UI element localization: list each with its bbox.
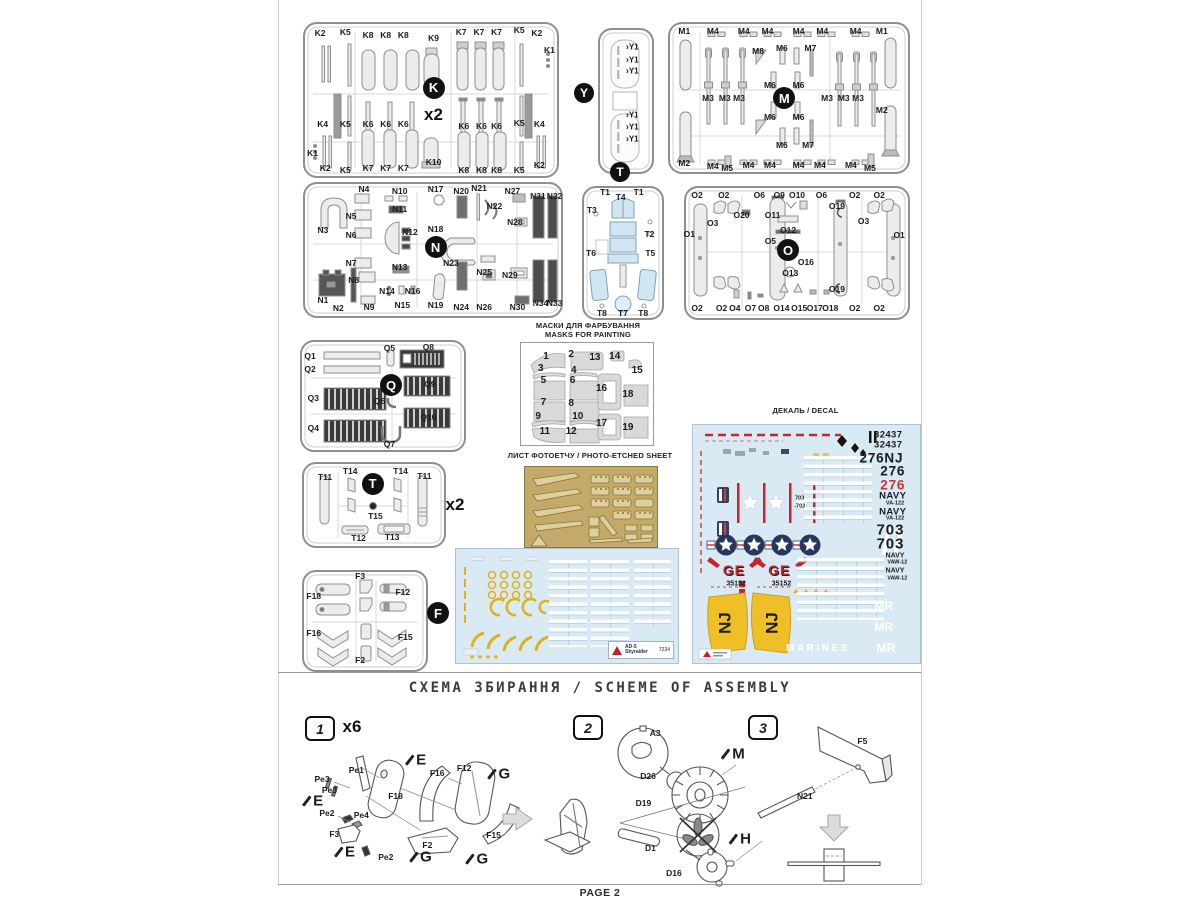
part-label-m: M3: [852, 94, 864, 103]
part-label-n: N6: [346, 231, 357, 240]
part-label-o: O9: [774, 190, 785, 199]
part-label-k: K2: [315, 29, 326, 38]
part-label-o: O13: [782, 268, 798, 277]
part-label-n: N31: [530, 192, 546, 201]
part-label-m: M4: [738, 27, 750, 36]
part-label-o: O5: [765, 237, 776, 246]
part-label-o: O16: [798, 258, 814, 267]
sprue-q-panel: Q Q1Q2Q3Q4Q5Q6Q7Q8Q9Q10: [300, 340, 466, 452]
part-label-k: K6: [398, 120, 409, 129]
part-label-n: N24: [453, 303, 469, 312]
part-label-y: Y1: [626, 43, 639, 52]
part-label-n: N33: [547, 299, 563, 308]
assembly-label: D19: [636, 798, 652, 807]
assembly-label: F12: [457, 764, 472, 773]
brand-logo-icon: [612, 646, 622, 655]
part-label-o: O2: [849, 190, 860, 199]
decal-marking: MR: [877, 642, 896, 654]
part-label-n: N12: [402, 227, 418, 236]
part-label-n: N1: [317, 296, 328, 305]
part-label-q: Q3: [308, 394, 319, 403]
page-number: PAGE 2: [278, 887, 922, 899]
part-label-k: K5: [514, 166, 525, 175]
sprue-n-badge: N: [425, 236, 447, 258]
decal-marking: MR: [874, 600, 893, 612]
sprue-k-multiplier: x2: [424, 105, 443, 125]
mask-number: 16: [596, 384, 607, 394]
assembly-label: G: [492, 767, 511, 782]
part-label-k: K9: [428, 33, 439, 42]
assembly-label: A3: [650, 728, 661, 737]
part-label-o: O4: [729, 303, 740, 312]
part-label-f: F12: [395, 587, 410, 596]
part-label-n: N25: [476, 268, 492, 277]
part-label-k: K5: [340, 166, 351, 175]
part-label-n: N19: [428, 301, 444, 310]
part-label-m: M6: [793, 113, 805, 122]
stencil-texture: [634, 560, 672, 626]
decal-marking: MR: [874, 621, 893, 633]
assembly-label: E: [338, 845, 355, 860]
part-label-o: O3: [858, 216, 869, 225]
part-label-n: N21: [471, 184, 487, 193]
assembly-label: G: [413, 850, 432, 865]
part-label-k: K6: [476, 122, 487, 131]
part-label-k: K8: [380, 30, 391, 39]
sprue-t-clear-badge: T: [610, 162, 630, 182]
part-label-k: K6: [380, 120, 391, 129]
mask-number: 10: [572, 412, 583, 422]
part-label-k: K8: [458, 166, 469, 175]
sprue-k-badge: K: [423, 77, 445, 99]
assembly-label: Pe4: [354, 811, 369, 820]
part-label-o: O1: [684, 229, 695, 238]
decal-marking: 35152: [772, 581, 791, 588]
mask-number: 14: [609, 352, 620, 362]
part-label-m: M3: [838, 94, 850, 103]
decal-marking: 276: [880, 478, 905, 492]
part-label-o: O12: [780, 225, 796, 234]
part-label-k: K1: [544, 46, 555, 55]
part-label-t: T3: [587, 206, 597, 215]
pe-title: ЛИСТ ФОТОЕТЧУ / PHOTO-ETCHED SHEET: [505, 451, 675, 460]
part-label-n: N17: [428, 185, 444, 194]
part-label-k: K8: [363, 30, 374, 39]
part-label-q: Q6: [374, 397, 385, 406]
decal-marking: 35152: [726, 581, 745, 588]
part-label-n: N11: [392, 205, 407, 214]
mask-number: 5: [541, 376, 547, 386]
part-label-m: M3: [733, 94, 745, 103]
decal-title: ДЕКАЛЬ / DECAL: [692, 406, 919, 415]
part-label-n: N4: [358, 185, 369, 194]
part-label-q: Q8: [423, 343, 434, 352]
decal-stencil-texture: [804, 456, 872, 523]
part-label-t2: T13: [385, 533, 400, 542]
part-label-n: N29: [502, 271, 518, 280]
part-label-n: N8: [348, 276, 359, 285]
sprue-t-clear-panel: T1T4T1T3T2T6T5T8T7T8: [582, 186, 664, 320]
part-label-n: N3: [317, 226, 328, 235]
assembly-label: F15: [486, 831, 501, 840]
part-label-t2: T15: [368, 511, 383, 520]
decal-marking: MARINES: [786, 644, 850, 654]
part-label-m: M4: [764, 160, 776, 169]
part-label-m: M4: [850, 27, 862, 36]
part-label-o: O6: [816, 190, 827, 199]
part-label-m: M1: [876, 27, 888, 36]
decal-marking: NJ: [764, 612, 781, 634]
assembly-label: D1: [645, 844, 656, 853]
assembly-label: Pe2: [378, 853, 393, 862]
part-label-o: O1: [893, 231, 904, 240]
part-label-m: M4: [707, 27, 719, 36]
part-label-k: K5: [340, 27, 351, 36]
part-label-o: O3: [707, 219, 718, 228]
mask-number: 3: [538, 364, 544, 374]
mask-number: 9: [535, 412, 541, 422]
assembly-label: F3: [329, 829, 339, 838]
sprue-n-panel: N N4N10N17N20N21N27N31N32N5N11N22N28N3N6…: [303, 182, 563, 318]
part-label-t: T1: [600, 188, 610, 197]
part-label-t: T1: [634, 188, 644, 197]
part-label-o: O17: [807, 303, 823, 312]
part-label-k: K4: [317, 120, 328, 129]
part-label-n: N7: [346, 259, 357, 268]
footer-line: [278, 884, 921, 885]
decal-sheet: 3243732437276NJ276276NAVYVA-122NAVYVA-12…: [692, 424, 921, 664]
part-label-q: Q10: [420, 412, 436, 421]
assembly-label: Pe3: [314, 775, 329, 784]
step-3-number: 3: [748, 715, 778, 740]
assembly-label: E: [409, 753, 426, 768]
part-label-m: M4: [793, 160, 805, 169]
part-label-n: N2: [333, 304, 344, 313]
assembly-label: F18: [388, 792, 403, 801]
part-label-f: F3: [355, 572, 365, 581]
part-label-o: O15: [791, 303, 807, 312]
part-label-k: K2: [320, 164, 331, 173]
part-label-y: Y1: [626, 67, 639, 76]
part-label-n: N20: [453, 186, 469, 195]
page-border-left: [278, 0, 279, 884]
part-label-y: Y1: [626, 111, 639, 120]
part-label-n: N27: [505, 186, 521, 195]
decal-marking: 32437: [874, 440, 902, 450]
part-label-k: K10: [426, 158, 442, 167]
decal-marking: GE: [768, 563, 790, 577]
mask-number: 12: [566, 427, 577, 437]
part-label-t: T6: [586, 249, 596, 258]
step-1-multiplier: x6: [343, 717, 362, 737]
mask-number: 6: [570, 376, 576, 386]
assembly-label: Pe3: [322, 786, 337, 795]
part-label-t2: T12: [351, 534, 366, 543]
part-label-n: N30: [510, 303, 526, 312]
part-label-f: F16: [306, 629, 321, 638]
part-label-m: M5: [864, 163, 876, 172]
part-label-k: K7: [398, 164, 409, 173]
part-label-k: K8: [491, 166, 502, 175]
decal-marking: 32437: [874, 430, 902, 440]
decal-marking: 703: [876, 537, 904, 552]
part-label-o: O2: [718, 190, 729, 199]
part-label-t2: T11: [417, 472, 431, 481]
decal-marking: GE: [723, 563, 745, 577]
part-label-y: Y1: [626, 55, 639, 64]
part-label-o: O11: [765, 211, 781, 220]
assembly-divider-line: [278, 672, 921, 673]
pe-sheet: [524, 466, 658, 548]
part-label-m: M6: [764, 113, 776, 122]
part-label-o: O18: [822, 303, 838, 312]
sprue-m-panel: M M1M4M4M4M4M4M4M1M8M6M7M3M3M3M6M6M6M6M3…: [668, 22, 910, 174]
part-label-m: M8: [752, 46, 764, 55]
part-label-k: K2: [534, 161, 545, 170]
part-label-f: F18: [306, 591, 321, 600]
part-label-o: O2: [691, 303, 702, 312]
part-label-o: O2: [873, 190, 884, 199]
part-label-o: O2: [849, 303, 860, 312]
part-label-t: T8: [638, 309, 648, 318]
sprue-y-panel: Y1Y1Y1Y1Y1Y1: [598, 28, 654, 174]
part-label-m: M5: [721, 163, 733, 172]
part-label-n: N22: [487, 202, 503, 211]
part-label-t: T5: [645, 249, 655, 258]
masks-sheet: 12131415345616187891017191112: [520, 342, 654, 446]
part-label-m: M4: [762, 27, 774, 36]
stencil-brand-name: AD-5 Skyraider: [625, 645, 656, 656]
part-label-n: N5: [346, 211, 357, 220]
part-label-n: N26: [476, 303, 492, 312]
assembly-step-1: Pe1EPe3Pe3EPe2Pe4F18F3EPe2F16F12GF2GF15G: [300, 726, 545, 882]
part-label-k: K7: [380, 164, 391, 173]
assembly-label: E: [306, 793, 323, 808]
part-label-t: T4: [616, 193, 626, 202]
part-label-k: K1: [307, 149, 318, 158]
decal-stencil-texture: [797, 558, 883, 620]
assembly-label: D16: [666, 868, 682, 877]
stencil-decal-sheet: AD-5 Skyraider 7234: [455, 548, 679, 664]
stencil-texture: [591, 560, 629, 647]
part-label-o: O2: [873, 303, 884, 312]
part-label-q: Q2: [304, 365, 315, 374]
part-label-m: M6: [793, 80, 805, 89]
part-label-t: T2: [645, 229, 655, 238]
part-label-o: O19: [829, 285, 845, 294]
sprue-t-small-multiplier: x2: [446, 495, 465, 515]
assembly-label: Pe1: [349, 765, 364, 774]
assembly-label: G: [470, 851, 489, 866]
mask-number: 18: [622, 390, 633, 400]
part-label-q: Q5: [384, 344, 395, 353]
mask-number: 17: [596, 419, 607, 429]
instruction-page: K x2 K2K5K8K8K8K9K7K7K7K5K2K1K4K5K6K6K6K…: [0, 0, 1200, 900]
part-label-y: Y1: [626, 122, 639, 131]
part-label-m: M4: [814, 160, 826, 169]
part-label-n: N28: [507, 218, 523, 227]
part-label-m: M7: [802, 141, 814, 150]
assembly-label: D26: [640, 772, 656, 781]
sprue-o-badge: O: [777, 239, 799, 261]
part-label-t2: T11: [318, 473, 332, 482]
part-label-k: K4: [534, 120, 545, 129]
part-label-f: F2: [355, 656, 365, 665]
sprue-t-small-panel: T T11T14T14T11T15T12T13: [302, 462, 446, 548]
part-label-o: O8: [758, 303, 769, 312]
stencil-brand-code: 7234: [659, 647, 670, 653]
part-label-q: Q9: [424, 380, 435, 389]
sprue-m-badge: M: [773, 87, 795, 109]
mask-number: 15: [632, 366, 643, 376]
part-label-n: N23: [443, 259, 459, 268]
part-label-k: K7: [456, 27, 467, 36]
part-label-n: N14: [379, 287, 395, 296]
part-label-m: M2: [678, 159, 690, 168]
part-label-k: K7: [491, 27, 502, 36]
mask-number: 13: [589, 353, 600, 363]
page-border-right: [921, 0, 922, 884]
part-label-k: K6: [491, 122, 502, 131]
assembly-label: F5: [857, 737, 867, 746]
pe-art: [525, 467, 657, 547]
part-label-m: M4: [707, 162, 719, 171]
sprue-k-panel: K x2 K2K5K8K8K8K9K7K7K7K5K2K1K4K5K6K6K6K…: [303, 22, 559, 178]
decal-marking: -703: [794, 504, 805, 510]
step-2-number: 2: [573, 715, 603, 740]
part-label-o: O14: [773, 303, 789, 312]
part-label-n: N13: [392, 263, 408, 272]
part-label-k: K7: [363, 164, 374, 173]
part-label-k: K5: [340, 120, 351, 129]
part-label-y: Y1: [626, 135, 639, 144]
part-label-m: M3: [719, 94, 731, 103]
part-label-n: N32: [547, 192, 563, 201]
step-3-art: [740, 715, 920, 890]
part-label-k: K5: [514, 26, 525, 35]
part-label-k: K6: [363, 120, 374, 129]
mask-number: 7: [541, 398, 547, 408]
part-label-m: M2: [876, 106, 888, 115]
part-label-k: K5: [514, 119, 525, 128]
part-label-n: N10: [392, 186, 408, 195]
masks-title-en: MASKS FOR PAINTING: [520, 330, 656, 339]
mask-number: 19: [622, 423, 633, 433]
sprue-f-badge: F: [427, 602, 449, 624]
part-label-o: O2: [716, 303, 727, 312]
part-label-o: O19: [829, 202, 845, 211]
decal-marking: NJ: [716, 612, 733, 634]
stencil-brand-box: AD-5 Skyraider 7234: [608, 641, 674, 659]
part-label-o: O7: [745, 303, 756, 312]
part-label-o: O20: [733, 211, 749, 220]
part-label-m: M7: [805, 43, 817, 52]
part-label-k: K8: [476, 166, 487, 175]
assembly-label: N21: [797, 791, 813, 800]
part-label-q: Q1: [304, 352, 315, 361]
part-label-n: N16: [405, 287, 421, 296]
part-label-k: K6: [458, 122, 469, 131]
part-label-n: N9: [364, 303, 375, 312]
part-label-k: K7: [473, 27, 484, 36]
sprue-k-art: [305, 24, 557, 176]
part-label-m: M3: [702, 94, 714, 103]
decal-marking: VAW-12: [887, 560, 907, 566]
masks-title-uk: МАСКИ ДЛЯ ФАРБУВАННЯ: [520, 321, 656, 330]
part-label-f: F15: [398, 632, 413, 641]
sprue-q-badge: Q: [380, 374, 402, 396]
part-label-t: T7: [618, 309, 628, 318]
part-label-k: K2: [531, 29, 542, 38]
part-label-k: K8: [398, 30, 409, 39]
sprue-t-small-badge: T: [362, 473, 384, 495]
sprue-f-panel: F3F18F12F16F15F2: [302, 570, 428, 672]
part-label-t2: T14: [393, 467, 408, 476]
mask-number: 2: [568, 350, 574, 360]
assembly-label: Pe2: [319, 809, 334, 818]
assembly-label: F16: [430, 769, 445, 778]
part-label-m: M1: [678, 27, 690, 36]
part-label-m: M6: [776, 43, 788, 52]
assembly-title: СХЕМА ЗБИРАННЯ / SCHEME OF ASSEMBLY: [278, 680, 922, 696]
decal-marking: VAW-12: [887, 576, 907, 582]
part-label-o: O6: [754, 190, 765, 199]
stencil-texture: [549, 560, 587, 647]
part-label-t: T8: [597, 309, 607, 318]
part-label-o: O10: [789, 190, 805, 199]
part-label-m: M4: [793, 27, 805, 36]
assembly-label: F2: [422, 840, 432, 849]
mask-number: 11: [539, 427, 550, 437]
part-label-m: M4: [816, 27, 828, 36]
decal-marking: 703: [795, 496, 804, 502]
part-label-m: M3: [821, 94, 833, 103]
step-1-number: 1: [305, 716, 335, 741]
sprue-o-panel: O O2O2O6O9O10O6O19O2O2O1O3O20O11O12O5O3O…: [684, 186, 910, 320]
part-label-m: M6: [764, 80, 776, 89]
part-label-n: N15: [394, 301, 410, 310]
part-label-q: Q4: [308, 424, 319, 433]
part-label-n: N18: [428, 225, 444, 234]
part-label-t2: T14: [343, 467, 358, 476]
part-label-q: Q7: [384, 439, 395, 448]
masks-title: МАСКИ ДЛЯ ФАРБУВАННЯ MASKS FOR PAINTING: [520, 321, 656, 340]
mask-number: 1: [543, 352, 549, 362]
part-label-m: M4: [743, 160, 755, 169]
assembly-step-3: F5N21: [740, 715, 920, 890]
part-label-m: M6: [776, 141, 788, 150]
part-label-o: O2: [691, 190, 702, 199]
mask-number: 8: [568, 399, 574, 409]
sprue-y-badge: Y: [574, 83, 594, 103]
part-label-m: M4: [845, 160, 857, 169]
